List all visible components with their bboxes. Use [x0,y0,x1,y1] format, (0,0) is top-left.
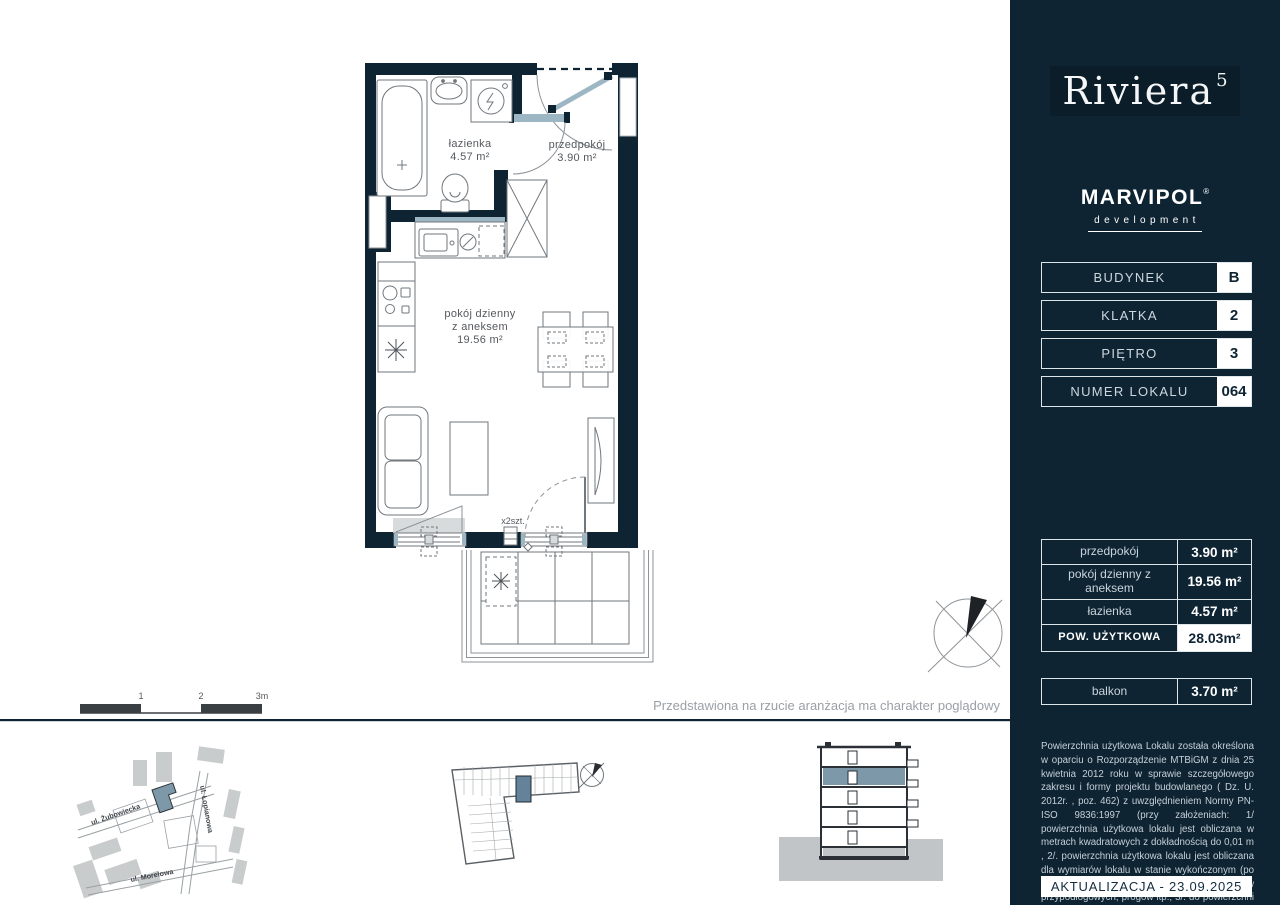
wardrobe [507,180,547,257]
dining-set [538,312,613,387]
scale-tick-1: 1 [138,691,143,701]
marvipol-tagline: development [1088,212,1202,232]
fridge-icon [385,339,407,361]
marvipol-name: MARVIPOL [1081,186,1203,209]
riviera-logo: Riviera5 [1010,66,1280,116]
marvipol-logo: MARVIPOL® development [1010,186,1280,232]
info-value: 064 [1217,377,1251,406]
area-value: 19.56 m² [1177,565,1251,599]
info-label: BUDYNEK [1042,263,1217,292]
hall-area: 3.90 m² [557,152,596,164]
plan-disclaimer: Przedstawiona na rzucie aranżacja ma cha… [653,698,1000,713]
floor-plan: x2szt. łazienka 4.57 m² przedpokój [365,63,653,662]
bathtub [377,80,427,196]
area-value: 4.57 m² [1177,600,1251,624]
scale-tick-2: 2 [198,691,203,701]
area-row-living: pokój dzienny z aneksem 19.56 m² [1042,564,1251,599]
apartment-card: x2szt. łazienka 4.57 m² przedpokój [0,0,1280,905]
info-row-unit-number: NUMER LOKALU 064 [1041,376,1252,407]
wall-shaft-notch [620,78,636,136]
floor-plan-canvas: x2szt. łazienka 4.57 m² przedpokój [0,0,1010,905]
section-highlighted-floor [823,768,905,785]
riviera-logo-sup: 5 [1216,70,1227,91]
tv-cabinet [588,418,614,503]
street-label-2: ul. Łopianowa [198,785,215,835]
info-row-staircase: KLATKA 2 [1041,300,1252,331]
duct-shaft [369,196,386,248]
area-label: przedpokój [1042,540,1177,564]
info-row-building: BUDYNEK B [1041,262,1252,293]
sidebar: Riviera5 MARVIPOL® development BUDYNEK B… [1010,0,1280,905]
coffee-table [450,422,488,495]
area-value: 3.90 m² [1177,540,1251,564]
divider-line [0,719,1010,721]
entrance-door [537,69,612,150]
bathroom-label: łazienka [449,138,492,150]
washbasin [431,77,467,104]
info-label: PIĘTRO [1042,339,1217,368]
riviera-logo-text: Riviera [1062,69,1214,113]
info-label: KLATKA [1042,301,1217,330]
area-table: przedpokój 3.90 m² pokój dzienny z aneks… [1041,539,1252,652]
balcony-value: 3.70 m² [1177,679,1251,704]
toilet [441,174,469,212]
ac-unit-snowflake-icon [492,572,510,590]
key-plan-compass-icon [579,763,604,788]
info-value: 3 [1217,339,1251,368]
site-map: ul. Żubowiecka ul. Łopianowa ul. Morelow… [73,746,247,898]
area-row-bathroom: łazienka 4.57 m² [1042,599,1251,624]
total-label: POW. UŻYTKOWA [1042,625,1177,651]
key-plan-highlighted-unit [516,776,531,802]
living-label2: z aneksem [452,321,508,333]
area-label: łazienka [1042,600,1177,624]
building-section [779,742,943,881]
living-label: pokój dzienny [444,308,515,320]
compass-icon [928,596,1002,672]
scale-bar: 1 2 3m [80,691,268,713]
marvipol-trademark: ® [1203,187,1209,196]
bathroom-area: 4.57 m² [450,151,489,163]
kitchen-counter [415,217,505,258]
info-row-floor: PIĘTRO 3 [1041,338,1252,369]
balcony [462,550,653,662]
balcony-label: balkon [1042,679,1177,704]
floor-key-plan [452,763,604,864]
area-label: pokój dzienny z aneksem [1042,565,1177,599]
balcony-door [521,477,587,556]
balcony-row: balkon 3.70 m² [1041,678,1252,705]
living-area: 19.56 m² [457,334,503,346]
sofa [378,407,428,515]
total-value: 28.03m² [1177,625,1251,651]
info-value: B [1217,263,1251,292]
info-label: NUMER LOKALU [1042,377,1217,406]
unit-info-boxes: BUDYNEK B KLATKA 2 PIĘTRO 3 NUMER LOKALU… [1041,262,1252,414]
update-date-badge: AKTUALIZACJA - 23.09.2025 [1041,876,1252,897]
hall-label: przedpokój [549,139,606,151]
area-row-hall: przedpokój 3.90 m² [1042,540,1251,564]
info-value: 2 [1217,301,1251,330]
window-count-label: x2szt. [501,516,525,526]
area-row-total: POW. UŻYTKOWA 28.03m² [1042,624,1251,651]
washing-machine-icon [471,80,512,122]
scale-tick-3: 3m [256,691,269,701]
